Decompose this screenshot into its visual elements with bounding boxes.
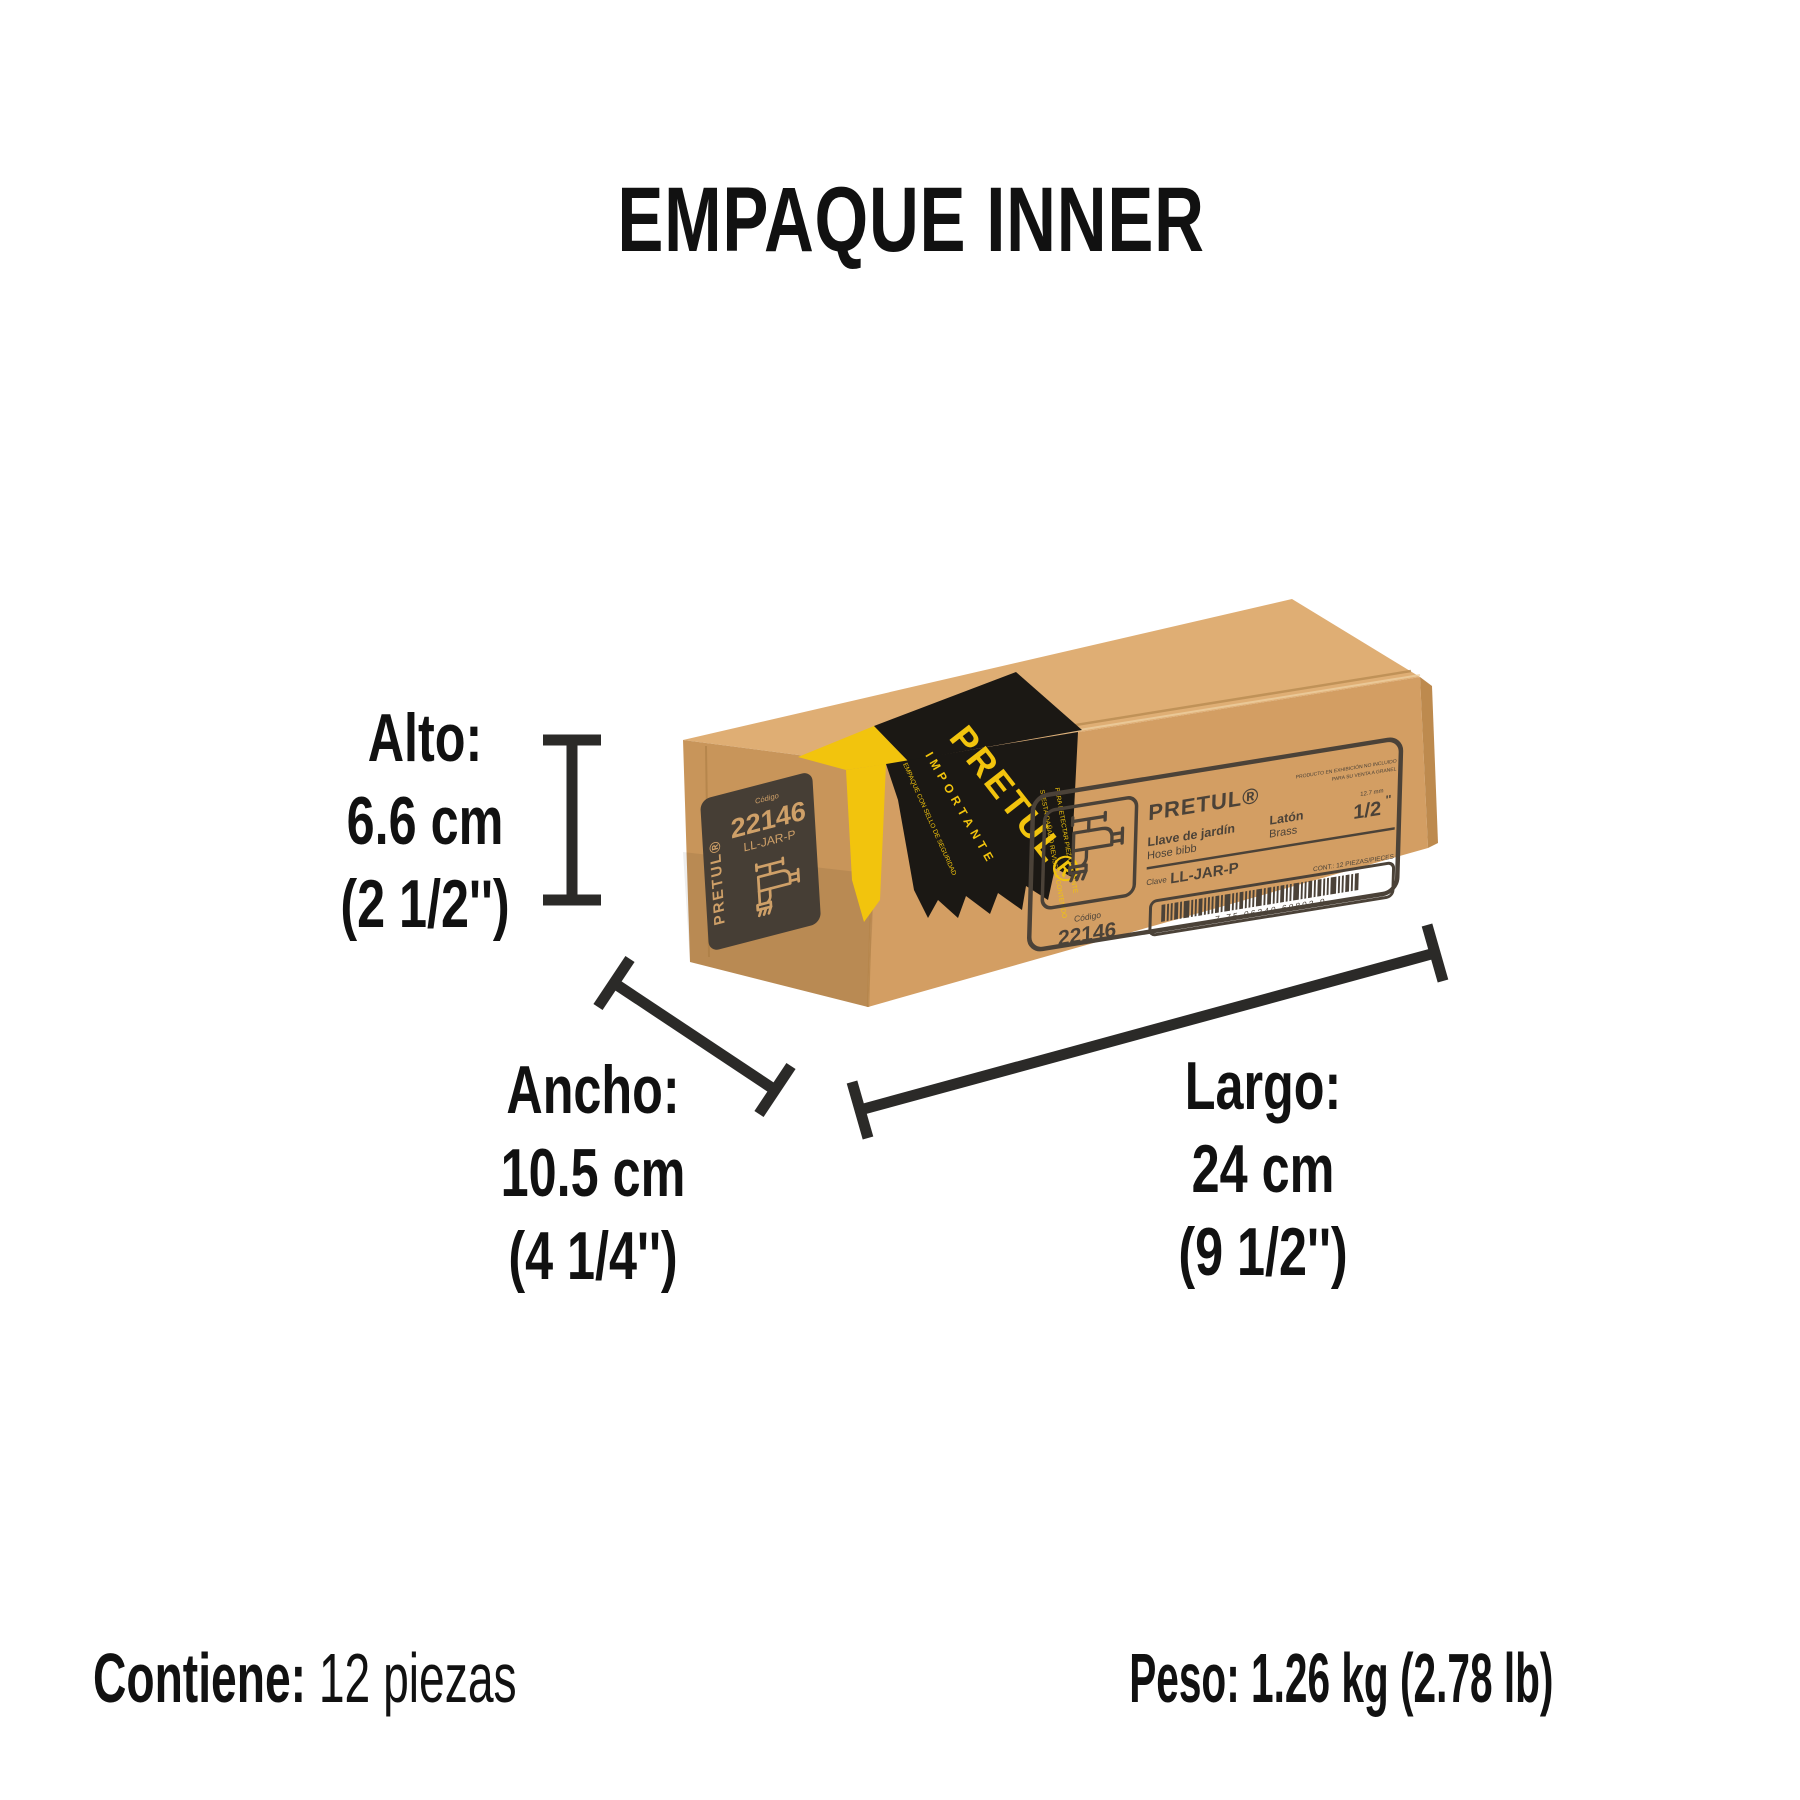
page-title: EMPAQUE INNER [611, 174, 1211, 266]
alto-dimension-label: Alto: 6.6 cm (2 1/2'') [277, 697, 573, 946]
ancho-imperial: (4 1/4'') [445, 1215, 741, 1298]
ancho-metric: 10.5 cm [445, 1132, 741, 1215]
alto-metric: 6.6 cm [277, 780, 573, 863]
alto-imperial: (2 1/2'') [277, 863, 573, 946]
contains-text: Contiene: 12 piezas [93, 1643, 517, 1713]
weight-value: 1.26 kg (2.78 lb) [1251, 1639, 1553, 1717]
side-panel: PRETUL® Código 22146 LL-JAR-P [700, 771, 821, 952]
label-size: 1/2 [1353, 798, 1381, 824]
largo-metric: 24 cm [1115, 1128, 1411, 1211]
alto-label: Alto: [277, 697, 573, 780]
largo-label: Largo: [1115, 1045, 1411, 1128]
contains-label: Contiene: [93, 1639, 306, 1717]
ancho-dimension-label: Ancho: 10.5 cm (4 1/4'') [445, 1049, 741, 1298]
label-size-unit: '' [1385, 792, 1391, 807]
empaque-inner-spec-sheet: PRETUL® IMPORTANTE EMPAQUE CON SELLO DE … [0, 0, 1800, 1800]
largo-imperial: (9 1/2'') [1115, 1211, 1411, 1294]
weight-text: Peso: 1.26 kg (2.78 lb) [1129, 1643, 1553, 1713]
ancho-label: Ancho: [445, 1049, 741, 1132]
largo-dimension-label: Largo: 24 cm (9 1/2'') [1115, 1045, 1411, 1294]
contains-value: 12 piezas [319, 1639, 517, 1717]
weight-label: Peso: [1129, 1639, 1240, 1717]
